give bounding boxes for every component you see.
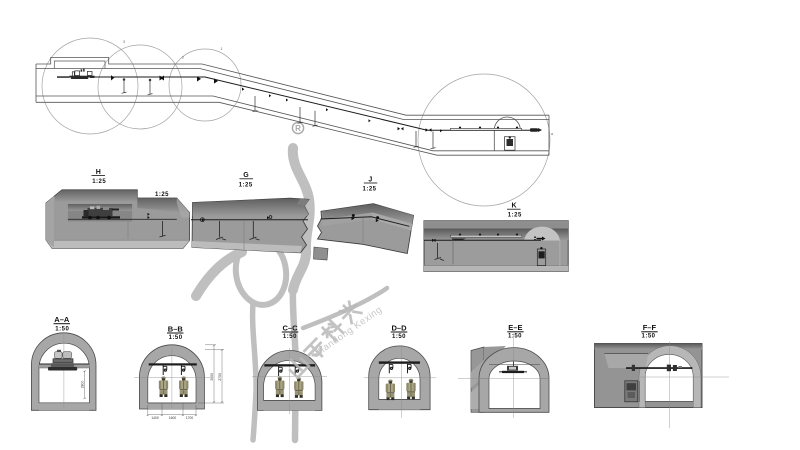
svg-text:1: 1 <box>221 47 223 51</box>
svg-text:3: 3 <box>123 40 125 44</box>
svg-text:1:25: 1:25 <box>155 192 169 198</box>
svg-text:1:50: 1:50 <box>508 334 522 340</box>
svg-text:1600: 1600 <box>169 416 177 420</box>
svg-text:1:50: 1:50 <box>169 335 183 341</box>
svg-text:C–C: C–C <box>282 323 298 332</box>
svg-text:F–F: F–F <box>643 323 657 332</box>
svg-text:E–E: E–E <box>508 323 522 332</box>
svg-text:1:25: 1:25 <box>508 212 522 218</box>
svg-text:B–B: B–B <box>168 324 184 333</box>
svg-text:1:25: 1:25 <box>362 186 376 192</box>
svg-text:G: G <box>243 172 249 179</box>
svg-text:2: 2 <box>182 56 184 60</box>
svg-text:1:50: 1:50 <box>283 334 297 340</box>
svg-text:3000: 3000 <box>210 373 214 381</box>
svg-text:1700: 1700 <box>186 416 194 420</box>
svg-text:1:50: 1:50 <box>392 334 406 340</box>
svg-text:a: a <box>551 132 553 136</box>
svg-text:2800: 2800 <box>81 381 85 389</box>
svg-text:2700: 2700 <box>218 373 222 381</box>
svg-text:R: R <box>295 124 301 133</box>
svg-text:1:50: 1:50 <box>55 327 69 333</box>
svg-text:1:50: 1:50 <box>641 334 655 340</box>
svg-text:1:25: 1:25 <box>92 179 106 185</box>
svg-text:1400: 1400 <box>151 416 159 420</box>
svg-text:K: K <box>511 203 516 210</box>
svg-text:H: H <box>96 169 101 176</box>
svg-text:D–D: D–D <box>391 323 407 332</box>
svg-text:J: J <box>368 176 372 183</box>
svg-text:A–A: A–A <box>54 315 70 324</box>
svg-text:1:25: 1:25 <box>239 182 253 188</box>
